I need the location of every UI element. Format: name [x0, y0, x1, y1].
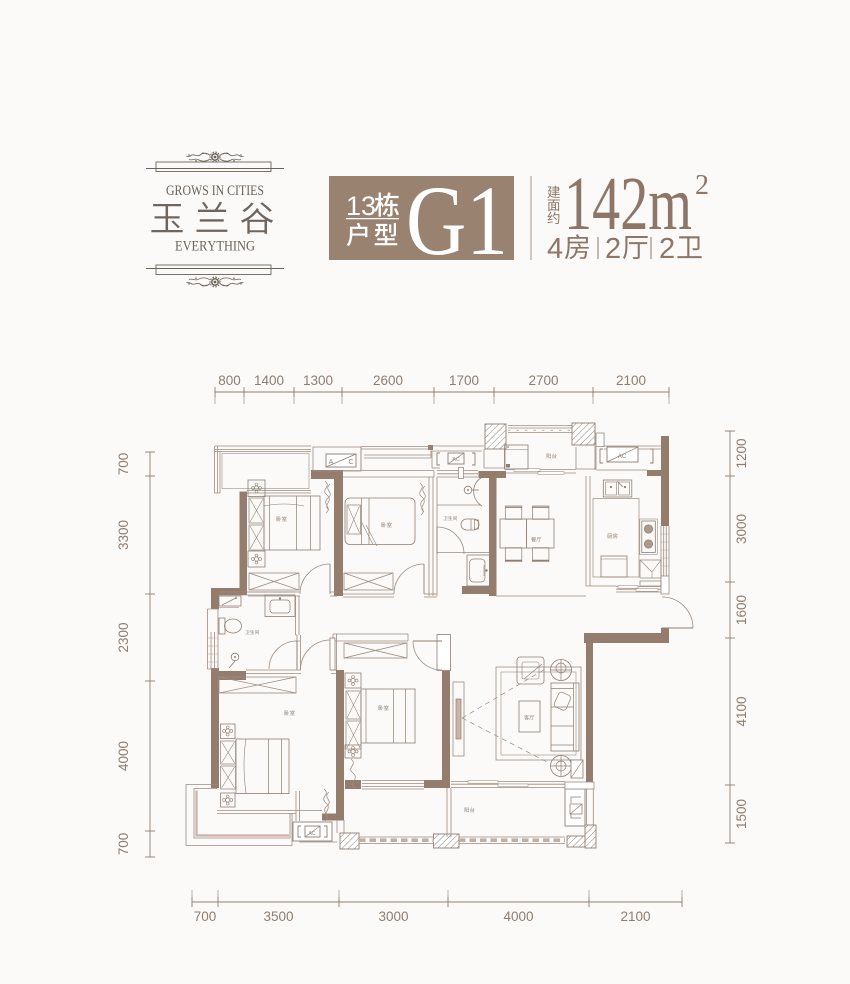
svg-text:700: 700: [116, 833, 131, 856]
svg-text:2700: 2700: [528, 373, 558, 388]
svg-text:GROWS IN CITIES: GROWS IN CITIES: [166, 183, 264, 199]
svg-text:1500: 1500: [734, 799, 749, 829]
svg-text:3500: 3500: [263, 909, 293, 924]
svg-text:EVERYTHING: EVERYTHING: [175, 239, 255, 255]
svg-text:AC: AC: [452, 457, 460, 463]
svg-text:C: C: [348, 459, 353, 466]
svg-text:2100: 2100: [620, 909, 650, 924]
svg-text:4100: 4100: [734, 696, 749, 726]
svg-text:4: 4: [547, 233, 563, 265]
svg-text:1200: 1200: [734, 438, 749, 468]
svg-text:1700: 1700: [449, 373, 479, 388]
svg-text:A: A: [329, 459, 334, 466]
svg-text:2: 2: [605, 233, 621, 265]
svg-text:2100: 2100: [616, 373, 646, 388]
svg-text:2300: 2300: [116, 622, 131, 652]
svg-text:1600: 1600: [734, 595, 749, 625]
svg-text:800: 800: [218, 373, 241, 388]
svg-text:AC: AC: [309, 831, 316, 837]
svg-text:3000: 3000: [734, 514, 749, 544]
svg-text:3300: 3300: [116, 520, 131, 550]
svg-text:2600: 2600: [373, 373, 403, 388]
svg-text:4000: 4000: [503, 909, 533, 924]
svg-text:1400: 1400: [254, 373, 284, 388]
svg-text:2: 2: [659, 233, 675, 265]
svg-text:700: 700: [194, 909, 217, 924]
svg-text:G1: G1: [406, 165, 508, 276]
svg-text:2: 2: [695, 170, 709, 201]
svg-text:AC: AC: [618, 454, 627, 460]
svg-text:1300: 1300: [303, 373, 333, 388]
svg-text:3000: 3000: [378, 909, 408, 924]
svg-text:700: 700: [116, 453, 131, 476]
svg-text:13: 13: [346, 191, 376, 221]
svg-text:4000: 4000: [116, 741, 131, 771]
